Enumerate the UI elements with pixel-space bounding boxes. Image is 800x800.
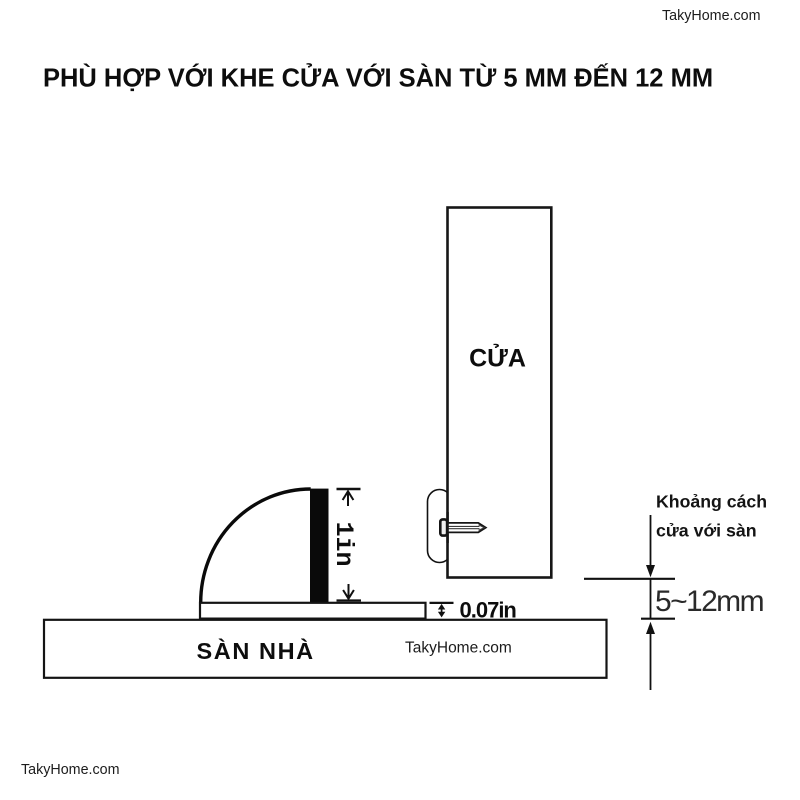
svg-text:Khoảng cách: Khoảng cách xyxy=(656,492,767,512)
svg-text:1in: 1in xyxy=(329,521,358,566)
svg-text:SÀN NHÀ: SÀN NHÀ xyxy=(197,637,315,664)
svg-text:CỬA: CỬA xyxy=(469,343,526,373)
svg-text:PHÙ HỢP VỚI KHE CỬA VỚI SÀN TỪ: PHÙ HỢP VỚI KHE CỬA VỚI SÀN TỪ 5 MM ĐẾN … xyxy=(43,63,713,93)
svg-text:TakyHome.com: TakyHome.com xyxy=(662,8,761,24)
svg-text:TakyHome.com: TakyHome.com xyxy=(405,640,512,657)
svg-text:TakyHome.com: TakyHome.com xyxy=(21,762,120,778)
svg-text:cửa với sàn: cửa với sàn xyxy=(656,521,757,541)
svg-text:5~12mm: 5~12mm xyxy=(655,585,764,618)
